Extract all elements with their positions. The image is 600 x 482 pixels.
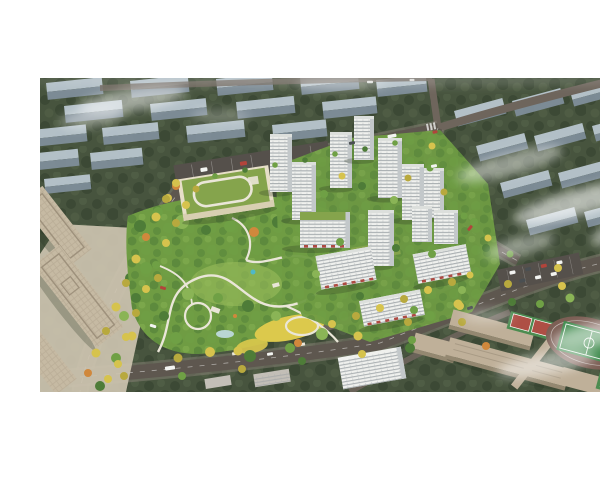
playground-slide	[251, 270, 256, 275]
residential-slab	[412, 206, 432, 242]
playground-feature	[233, 314, 237, 318]
residential-slab	[434, 210, 458, 244]
slab-green-roof	[300, 212, 350, 220]
aerial-masterplan-rendering: Aerial architectural rendering — residen…	[40, 16, 600, 466]
rendering-svg: Aerial architectural rendering — residen…	[40, 16, 600, 466]
pond	[216, 330, 234, 338]
lawn-clearing	[190, 262, 282, 306]
rooftop-skylight	[248, 176, 259, 185]
